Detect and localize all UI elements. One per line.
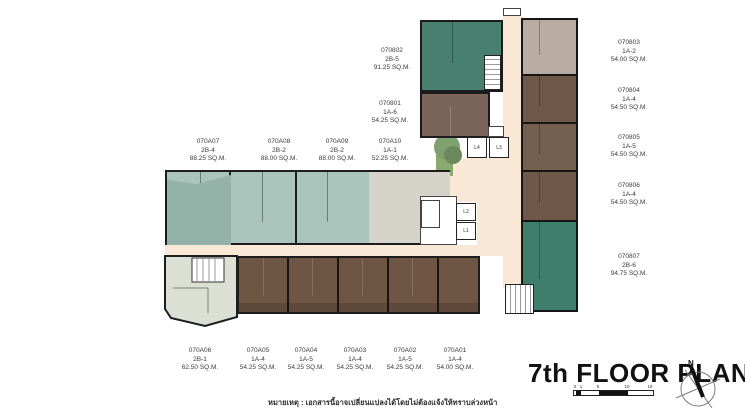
- unit-070802-area: [420, 20, 503, 92]
- unit-070803-area: [523, 20, 576, 74]
- lift-l1: L1: [456, 222, 476, 240]
- unit-type: 1A-5: [599, 143, 659, 152]
- unit-type: 1A-4: [599, 191, 659, 200]
- unit-area: 88.00 SQ.M.: [307, 155, 367, 164]
- unit-id: 070803: [599, 39, 659, 48]
- unit-area: 54.50 SQ.M.: [599, 199, 659, 208]
- unit-type: 2B-2: [249, 147, 309, 156]
- lift-l3: L3: [489, 137, 509, 158]
- unit-label-070806: 070806 1A-4 54.50 SQ.M.: [599, 182, 659, 208]
- meter-room: [488, 126, 504, 137]
- unit-area: 54.25 SQ.M.: [360, 117, 420, 126]
- unit-label-070A01: 070A01 1A-4 54.00 SQ.M.: [425, 347, 485, 373]
- unit-id: 070804: [599, 87, 659, 96]
- unit-type: 1A-2: [599, 48, 659, 57]
- unit-type: 1A-6: [360, 109, 420, 118]
- scale-tick: 10: [624, 384, 629, 389]
- unit-type: 1A-1: [360, 147, 420, 156]
- lift-l4: L4: [467, 137, 487, 158]
- scale-segment: [576, 391, 581, 395]
- lift-label: L4: [474, 145, 480, 151]
- scale-tick: 1: [580, 384, 583, 389]
- wall-line: [450, 107, 451, 136]
- compass-icon: N: [670, 356, 728, 414]
- scale-segment: [599, 391, 628, 395]
- unit-row-070A01-070A05: [237, 256, 480, 314]
- unit-area: 94.75 SQ.M.: [599, 270, 659, 279]
- unit-id: 070A07: [178, 138, 238, 147]
- unit-070A06-area: [163, 253, 241, 331]
- unit-area: 54.50 SQ.M.: [599, 104, 659, 113]
- unit-area: 52.25 SQ.M.: [360, 155, 420, 164]
- unit-type: 1A-4: [599, 96, 659, 105]
- stairs: [505, 284, 534, 314]
- unit-label-070A06: 070A06 2B-1 62.50 SQ.M.: [170, 347, 230, 373]
- lift-label: L2: [463, 209, 469, 215]
- stairs: [484, 55, 501, 90]
- unit-label-070802: 070802 2B-5 91.25 SQ.M.: [362, 47, 422, 73]
- unit-id: 070A08: [249, 138, 309, 147]
- unit-label-070A08: 070A08 2B-2 88.00 SQ.M.: [249, 138, 309, 164]
- unit-label-070803: 070803 1A-2 54.00 SQ.M.: [599, 39, 659, 65]
- unit-row-070A07-070A10: [165, 170, 450, 245]
- unit-id: 070806: [599, 182, 659, 191]
- unit-area: 88.00 SQ.M.: [249, 155, 309, 164]
- unit-type: 2B-6: [599, 262, 659, 271]
- scale-bar-rule: [573, 390, 654, 396]
- scale-bar: 0 1 5 10 15: [573, 384, 653, 396]
- unit-area: 62.50 SQ.M.: [170, 364, 230, 373]
- unit-area: 54.00 SQ.M.: [599, 56, 659, 65]
- unit-area: 54.50 SQ.M.: [599, 151, 659, 160]
- wall-line: [452, 22, 453, 63]
- unit-070805-area: [523, 122, 576, 170]
- unit-area: 88.25 SQ.M.: [178, 155, 238, 164]
- unit-070804-area: [523, 74, 576, 122]
- lift-label: L3: [496, 145, 502, 151]
- unit-id: 070805: [599, 134, 659, 143]
- scale-tick: 5: [597, 384, 600, 389]
- scale-tick: 15: [647, 384, 652, 389]
- unit-id: 070A01: [425, 347, 485, 356]
- corridor-lobby-lower: [477, 202, 503, 245]
- unit-id: 070807: [599, 253, 659, 262]
- remark-note: หมายเหตุ : เอกสารนี้อาจเปลี่ยนแปลงได้โดย…: [268, 375, 497, 415]
- unit-070A07-area: [167, 172, 231, 245]
- unit-id: 070A09: [307, 138, 367, 147]
- balcony-box: [503, 8, 521, 16]
- unit-area: 91.25 SQ.M.: [362, 64, 422, 73]
- unit-label-070805: 070805 1A-5 54.50 SQ.M.: [599, 134, 659, 160]
- unit-id: 070801: [360, 100, 420, 109]
- unit-type: 2B-1: [170, 356, 230, 365]
- tree-icon: [444, 146, 462, 164]
- unit-label-070804: 070804 1A-4 54.50 SQ.M.: [599, 87, 659, 113]
- remark-thai: หมายเหตุ : เอกสารนี้อาจเปลี่ยนแปลงได้โดย…: [268, 397, 497, 408]
- corridor-vertical: [503, 15, 521, 256]
- unit-label-070A09: 070A09 2B-2 88.00 SQ.M.: [307, 138, 367, 164]
- unit-column-east: [521, 18, 578, 312]
- unit-type: 1A-4: [425, 356, 485, 365]
- unit-label-070801: 070801 1A-6 54.25 SQ.M.: [360, 100, 420, 126]
- unit-label-070807: 070807 2B-6 94.75 SQ.M.: [599, 253, 659, 279]
- unit-070801-area: [420, 92, 490, 138]
- unit-type: 2B-5: [362, 56, 422, 65]
- unit-type: 2B-4: [178, 147, 238, 156]
- unit-070806-area: [523, 170, 576, 220]
- unit-area: 54.00 SQ.M.: [425, 364, 485, 373]
- unit-type: 2B-2: [307, 147, 367, 156]
- garbage-room: [421, 200, 440, 228]
- lift-label: L1: [463, 228, 469, 234]
- unit-id: 070A10: [360, 138, 420, 147]
- unit-label-070A10: 070A10 1A-1 52.25 SQ.M.: [360, 138, 420, 164]
- unit-id: 070A06: [170, 347, 230, 356]
- unit-id: 070802: [362, 47, 422, 56]
- unit-label-070A07: 070A07 2B-4 88.25 SQ.M.: [178, 138, 238, 164]
- lift-l2: L2: [456, 203, 476, 221]
- floor-plan-page: L4 L3 L2 L1 070A07 2B-4 88.25 SQ.M. 070A…: [0, 0, 745, 415]
- compass-north-label: N: [688, 359, 694, 368]
- scale-tick: 0: [574, 384, 577, 389]
